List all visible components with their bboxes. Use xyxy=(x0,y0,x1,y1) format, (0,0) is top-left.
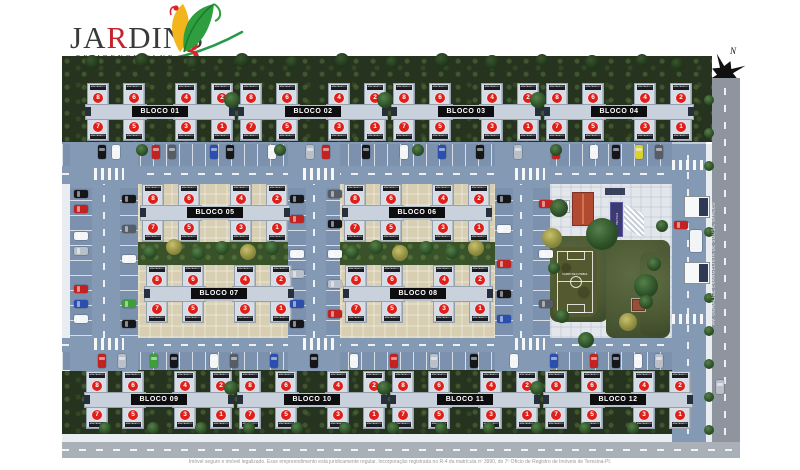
tree xyxy=(224,92,240,108)
tree xyxy=(136,144,148,156)
tree xyxy=(99,422,111,434)
tree xyxy=(704,425,714,435)
screen: JARDINS RESIDENCE CLUB 3 N xyxy=(0,0,800,470)
tree xyxy=(419,241,433,255)
tree xyxy=(435,422,447,434)
tree xyxy=(85,55,99,69)
tree xyxy=(445,245,459,259)
tree xyxy=(191,246,205,260)
tree xyxy=(224,381,238,395)
site-plan: PISCINA CAMPO DE FUTEBOL BLOCO 01APARTAM… xyxy=(62,56,742,458)
tree xyxy=(536,54,548,66)
tree xyxy=(435,53,449,67)
tree xyxy=(243,422,255,434)
tree xyxy=(369,240,383,254)
tree xyxy=(195,422,207,434)
tree xyxy=(377,381,391,395)
tree xyxy=(485,55,499,69)
tree xyxy=(215,241,229,255)
tree xyxy=(704,95,714,105)
tree xyxy=(555,309,569,323)
tree xyxy=(585,55,599,69)
tree xyxy=(186,57,198,69)
tree xyxy=(386,56,398,68)
tree xyxy=(339,422,351,434)
tree xyxy=(619,313,637,331)
tree xyxy=(143,245,157,259)
tree xyxy=(387,422,399,434)
tree xyxy=(235,53,249,67)
tree xyxy=(274,144,286,156)
tree xyxy=(265,241,279,255)
tree xyxy=(548,262,560,274)
tree xyxy=(704,128,714,138)
tree xyxy=(291,422,303,434)
tree xyxy=(531,422,543,434)
trees-layer xyxy=(62,56,742,458)
avenue-name-label: AV. DORALICE EVANGELISTA DE SOUSA, DIRCE… xyxy=(707,174,719,352)
tree xyxy=(377,92,393,108)
logo-leaf-icon xyxy=(150,2,222,54)
tree xyxy=(412,144,424,156)
tree xyxy=(147,422,159,434)
tree xyxy=(550,199,568,217)
logo-title-accent: R xyxy=(106,20,128,55)
tree xyxy=(483,422,495,434)
tree xyxy=(550,144,562,156)
tree xyxy=(542,228,562,248)
tree xyxy=(392,245,408,261)
tree xyxy=(345,245,359,259)
tree xyxy=(704,392,714,402)
tree xyxy=(627,422,639,434)
tree xyxy=(586,218,618,250)
compass-north-label: N xyxy=(729,46,737,56)
tree xyxy=(240,244,256,260)
legal-disclaimer: Imóvel seguro e imóvel legalizado. Esse … xyxy=(0,459,800,465)
tree xyxy=(671,58,683,70)
tree xyxy=(286,56,298,68)
tree xyxy=(579,422,591,434)
tree xyxy=(704,359,714,369)
tree xyxy=(468,240,484,256)
tree xyxy=(530,92,546,108)
tree xyxy=(704,161,714,171)
tree xyxy=(166,239,182,255)
tree xyxy=(647,257,661,271)
tree xyxy=(578,332,594,348)
tree xyxy=(335,53,349,67)
tree xyxy=(636,54,648,66)
tree xyxy=(530,381,544,395)
logo-title-pre: JA xyxy=(70,20,106,55)
tree xyxy=(135,53,149,67)
tree xyxy=(639,295,653,309)
tree xyxy=(656,220,668,232)
